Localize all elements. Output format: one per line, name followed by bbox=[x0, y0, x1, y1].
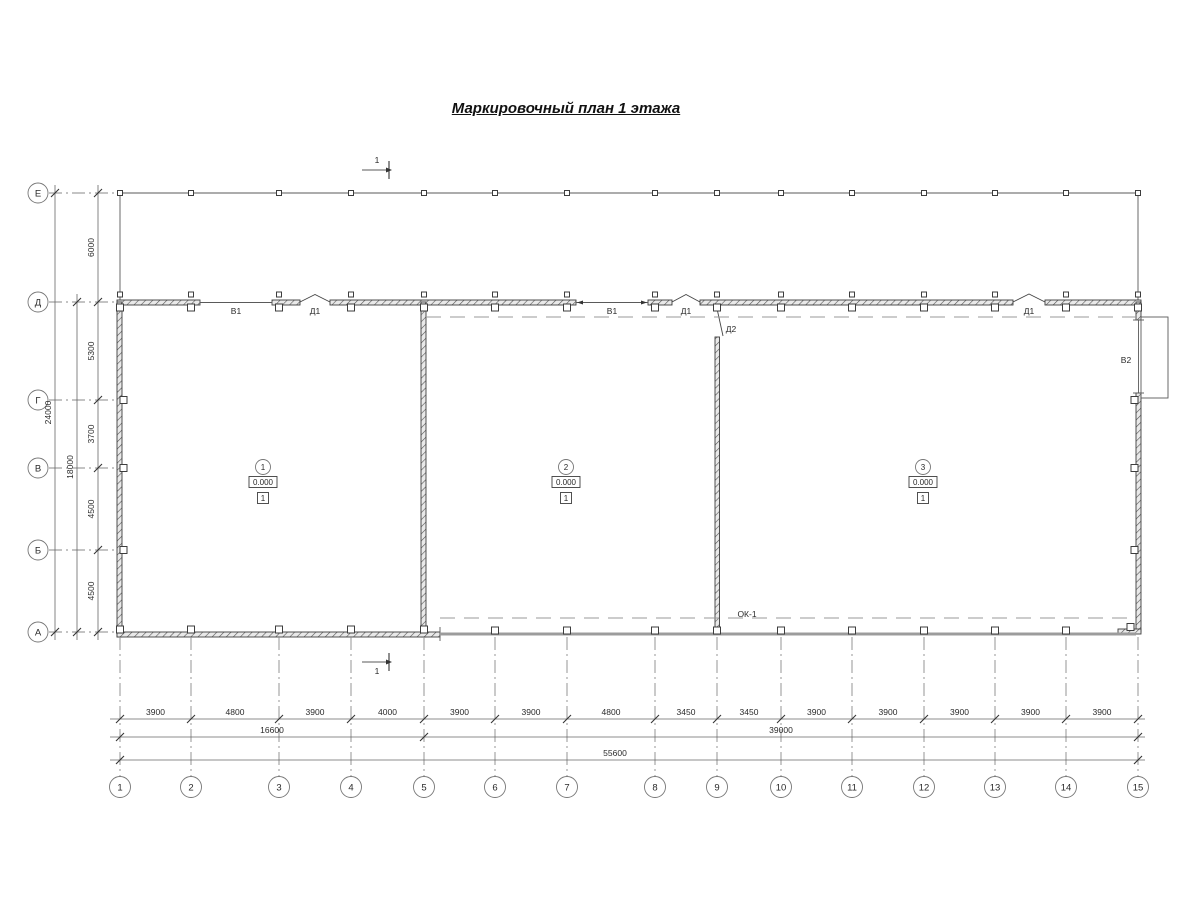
dim-label: 4000 bbox=[378, 707, 397, 717]
col-bubble-label: 2 bbox=[188, 783, 193, 794]
column-marker bbox=[492, 627, 499, 634]
col-bubble-label: 15 bbox=[1133, 783, 1144, 794]
column-marker bbox=[778, 304, 785, 311]
column-marker bbox=[348, 304, 355, 311]
col-bubble-label: 7 bbox=[564, 783, 569, 794]
column-marker bbox=[779, 191, 784, 196]
column-marker bbox=[992, 627, 999, 634]
room-number: 1 bbox=[261, 463, 266, 472]
elevation-value: 0.000 bbox=[253, 478, 274, 487]
column-marker bbox=[349, 292, 354, 297]
floor-type-value: 1 bbox=[921, 494, 926, 503]
dim-label: 5300 bbox=[86, 341, 96, 360]
column-marker bbox=[118, 191, 123, 196]
column-marker bbox=[922, 191, 927, 196]
column-marker bbox=[118, 292, 123, 297]
column-marker bbox=[565, 292, 570, 297]
dim-label: 6000 bbox=[86, 238, 96, 257]
column-marker bbox=[1063, 304, 1070, 311]
column-marker bbox=[714, 304, 721, 311]
gate-b2-recess bbox=[1141, 317, 1168, 398]
dim-label: 24000 bbox=[43, 400, 53, 424]
door-swing-d1 bbox=[1013, 294, 1045, 302]
column-marker bbox=[993, 292, 998, 297]
dim-label: 4800 bbox=[226, 707, 245, 717]
column-marker bbox=[492, 304, 499, 311]
column-marker bbox=[993, 191, 998, 196]
col-bubble-label: 11 bbox=[847, 783, 857, 794]
dim-label: 4800 bbox=[602, 707, 621, 717]
column-marker bbox=[348, 626, 355, 633]
column-marker bbox=[188, 304, 195, 311]
col-bubble-label: 12 bbox=[919, 783, 930, 794]
column-marker bbox=[277, 292, 282, 297]
column-marker bbox=[850, 292, 855, 297]
column-marker bbox=[715, 292, 720, 297]
section-label: 1 bbox=[375, 666, 380, 676]
gate-arrow bbox=[577, 301, 583, 305]
column-marker bbox=[276, 626, 283, 633]
column-marker bbox=[849, 627, 856, 634]
column-marker bbox=[715, 191, 720, 196]
row-bubble-label: Г bbox=[35, 396, 40, 407]
column-marker bbox=[921, 627, 928, 634]
opening-label: ОК-1 bbox=[737, 609, 756, 619]
opening-label: В1 bbox=[607, 306, 618, 316]
row-bubble-label: В bbox=[35, 464, 41, 475]
wall-right-lower bbox=[1136, 393, 1141, 632]
row-bubble-label: Б bbox=[35, 546, 41, 557]
column-marker bbox=[188, 626, 195, 633]
column-marker bbox=[714, 627, 721, 634]
opening-label: В1 bbox=[231, 306, 242, 316]
column-marker bbox=[652, 627, 659, 634]
column-marker bbox=[277, 191, 282, 196]
column-marker bbox=[849, 304, 856, 311]
dim-label: 3900 bbox=[146, 707, 165, 717]
opening-label: Д1 bbox=[310, 306, 321, 316]
column-marker bbox=[493, 191, 498, 196]
col-bubble-label: 3 bbox=[276, 783, 281, 794]
opening-label: Д1 bbox=[1024, 306, 1035, 316]
room-number: 2 bbox=[564, 463, 569, 472]
opening-label: Д2 bbox=[726, 324, 737, 334]
col-bubble-label: 10 bbox=[776, 783, 787, 794]
column-marker bbox=[493, 292, 498, 297]
row-bubble-label: Д bbox=[35, 298, 42, 309]
dim-label: 4500 bbox=[86, 581, 96, 600]
door-swing-d1 bbox=[672, 295, 700, 303]
dim-label: 3900 bbox=[950, 707, 969, 717]
column-marker bbox=[189, 191, 194, 196]
column-marker bbox=[421, 304, 428, 311]
section-label: 1 bbox=[375, 155, 380, 165]
column-marker bbox=[1135, 304, 1142, 311]
column-marker bbox=[652, 304, 659, 311]
column-marker bbox=[120, 547, 127, 554]
column-marker bbox=[189, 292, 194, 297]
dim-label: 3900 bbox=[1093, 707, 1112, 717]
col-bubble-label: 4 bbox=[348, 783, 353, 794]
column-marker bbox=[349, 191, 354, 196]
col-bubble-label: 5 bbox=[421, 783, 426, 794]
column-marker bbox=[120, 465, 127, 472]
column-marker bbox=[992, 304, 999, 311]
row-bubble-label: А bbox=[35, 628, 42, 639]
column-marker bbox=[778, 627, 785, 634]
dim-label: 3700 bbox=[86, 424, 96, 443]
column-marker bbox=[1131, 547, 1138, 554]
dim-label: 3900 bbox=[522, 707, 541, 717]
col-bubble-label: 14 bbox=[1061, 783, 1072, 794]
column-marker bbox=[564, 304, 571, 311]
column-marker bbox=[565, 191, 570, 196]
dim-label: 3900 bbox=[807, 707, 826, 717]
col-bubble-label: 6 bbox=[492, 783, 497, 794]
partition-wall-axis9 bbox=[715, 337, 720, 632]
column-marker bbox=[1136, 292, 1141, 297]
dim-label: 3900 bbox=[1021, 707, 1040, 717]
dim-label: 3450 bbox=[740, 707, 759, 717]
floor-type-value: 1 bbox=[564, 494, 569, 503]
column-marker bbox=[1064, 292, 1069, 297]
dim-label: 55600 bbox=[603, 748, 627, 758]
column-marker bbox=[922, 292, 927, 297]
column-marker bbox=[1131, 465, 1138, 472]
column-marker bbox=[120, 397, 127, 404]
wall-segment-row-d bbox=[700, 300, 1013, 305]
column-marker bbox=[117, 626, 124, 633]
column-marker bbox=[1063, 627, 1070, 634]
column-marker bbox=[117, 304, 124, 311]
wall-segment-row-d bbox=[1045, 300, 1141, 305]
column-marker bbox=[422, 292, 427, 297]
column-marker bbox=[1064, 191, 1069, 196]
opening-label: В2 bbox=[1121, 355, 1132, 365]
row-bubble-label: Е bbox=[35, 189, 41, 200]
column-marker bbox=[276, 304, 283, 311]
dim-label: 3900 bbox=[306, 707, 325, 717]
gate-arrow bbox=[641, 301, 647, 305]
column-marker bbox=[1131, 397, 1138, 404]
col-bubble-label: 13 bbox=[990, 783, 1001, 794]
column-marker bbox=[653, 292, 658, 297]
dim-label: 3450 bbox=[677, 707, 696, 717]
dim-label: 3900 bbox=[450, 707, 469, 717]
floor-plan-canvas: ЕДГВБА60005300370045004500180002400010.0… bbox=[0, 0, 1200, 900]
elevation-value: 0.000 bbox=[913, 478, 934, 487]
column-marker bbox=[921, 304, 928, 311]
column-marker bbox=[653, 191, 658, 196]
column-marker bbox=[850, 191, 855, 196]
dim-label: 3900 bbox=[879, 707, 898, 717]
column-marker bbox=[1127, 624, 1134, 631]
door-swing-d1 bbox=[300, 295, 330, 303]
column-marker bbox=[564, 627, 571, 634]
column-marker bbox=[1136, 191, 1141, 196]
column-marker bbox=[779, 292, 784, 297]
floor-type-value: 1 bbox=[261, 494, 266, 503]
wall-segment-row-d bbox=[330, 300, 576, 305]
elevation-value: 0.000 bbox=[556, 478, 577, 487]
col-bubble-label: 8 bbox=[652, 783, 657, 794]
dim-label: 16600 bbox=[260, 725, 284, 735]
col-bubble-label: 1 bbox=[117, 783, 122, 794]
dim-label: 4500 bbox=[86, 499, 96, 518]
room-number: 3 bbox=[921, 463, 926, 472]
column-marker bbox=[421, 626, 428, 633]
dim-label: 39000 bbox=[769, 725, 793, 735]
dim-label: 18000 bbox=[65, 455, 75, 479]
col-bubble-label: 9 bbox=[714, 783, 719, 794]
wall-axis5 bbox=[421, 302, 426, 637]
column-marker bbox=[422, 191, 427, 196]
opening-label: Д1 bbox=[681, 306, 692, 316]
drawing-sheet: Маркировочный план 1 этажа ЕДГВБА6000530… bbox=[0, 0, 1200, 900]
